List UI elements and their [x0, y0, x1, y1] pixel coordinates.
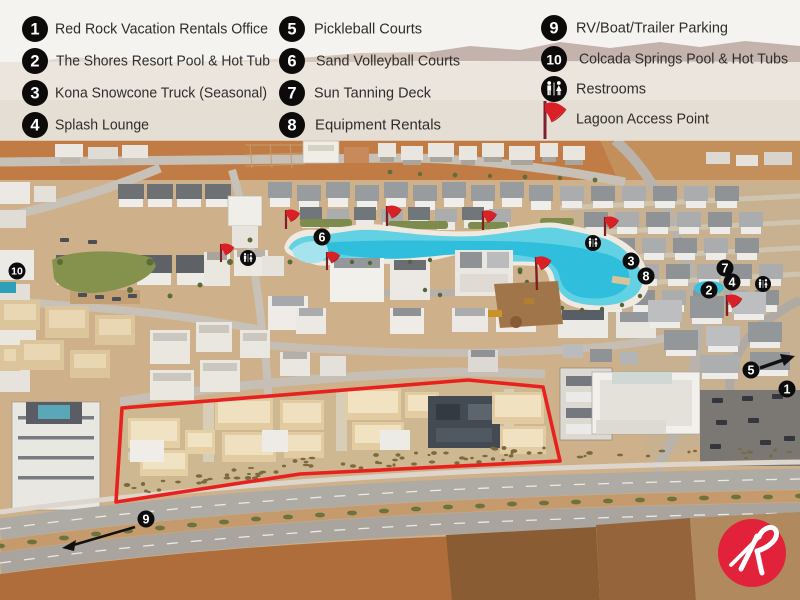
svg-text:Restrooms: Restrooms — [576, 81, 646, 98]
svg-text:7: 7 — [722, 262, 729, 276]
svg-text:3: 3 — [628, 255, 635, 269]
svg-text:5: 5 — [287, 21, 296, 39]
svg-text:10: 10 — [11, 266, 23, 278]
svg-text:The Shores Resort Pool & Hot T: The Shores Resort Pool & Hot Tub — [56, 53, 270, 70]
svg-text:Pickleball Courts: Pickleball Courts — [314, 21, 422, 38]
svg-text:9: 9 — [549, 20, 558, 38]
svg-text:10: 10 — [546, 52, 562, 68]
svg-text:8: 8 — [287, 117, 296, 135]
svg-text:Equipment Rentals: Equipment Rentals — [315, 117, 441, 134]
svg-text:9: 9 — [143, 513, 150, 527]
svg-text:Sun Tanning Deck: Sun Tanning Deck — [314, 85, 431, 102]
svg-text:Red Rock Vacation Rentals Offi: Red Rock Vacation Rentals Office — [55, 21, 268, 38]
svg-text:2: 2 — [706, 284, 713, 298]
svg-text:4: 4 — [30, 117, 40, 135]
svg-text:7: 7 — [287, 85, 296, 103]
svg-text:Lagoon Access Point: Lagoon Access Point — [576, 111, 710, 128]
svg-text:3: 3 — [30, 85, 39, 103]
svg-text:Sand Volleyball Courts: Sand Volleyball Courts — [316, 53, 460, 70]
svg-text:1: 1 — [784, 383, 791, 397]
svg-text:8: 8 — [643, 270, 650, 284]
svg-text:Kona Snowcone Truck (Seasonal): Kona Snowcone Truck (Seasonal) — [55, 85, 267, 102]
svg-text:RV/Boat/Trailer Parking: RV/Boat/Trailer Parking — [576, 20, 728, 37]
svg-text:Colcada Springs Pool & Hot Tub: Colcada Springs Pool & Hot Tubs — [579, 51, 788, 68]
svg-text:6: 6 — [319, 231, 326, 245]
svg-text:1: 1 — [30, 21, 39, 39]
svg-text:Splash Lounge: Splash Lounge — [55, 117, 149, 134]
svg-text:6: 6 — [287, 53, 296, 71]
svg-text:4: 4 — [729, 276, 736, 290]
svg-text:2: 2 — [30, 53, 39, 71]
svg-text:5: 5 — [748, 364, 755, 378]
